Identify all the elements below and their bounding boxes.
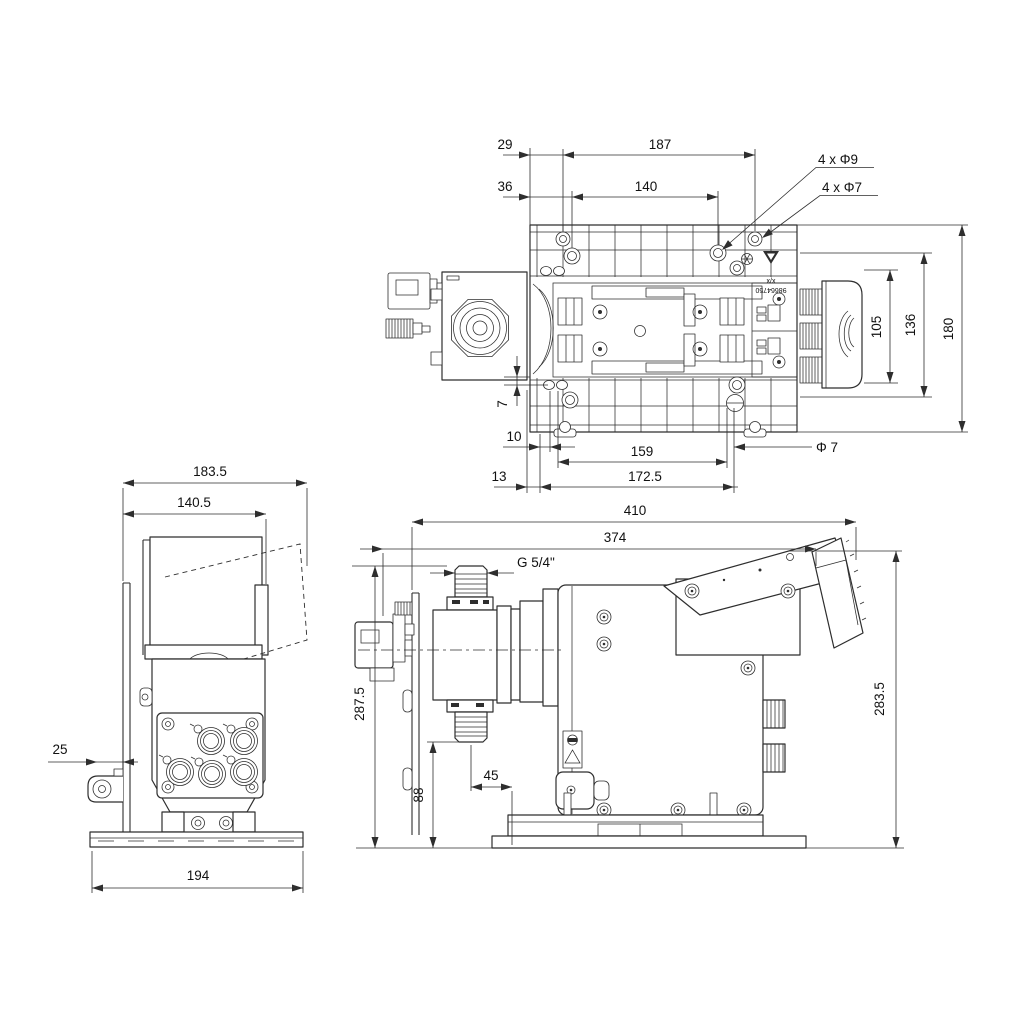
- dim-45: 45: [471, 768, 512, 791]
- dim-105: 105: [869, 270, 894, 383]
- dosing-head-top: [386, 272, 527, 380]
- base-plate-front: [90, 832, 303, 847]
- dim-label-thread: G 5/4": [517, 555, 555, 570]
- dim-183_5: 183.5: [123, 464, 307, 487]
- label-4x-phi9: 4 x Φ9: [818, 152, 858, 167]
- connector-panel: [157, 713, 263, 798]
- dim-thread-g54: G 5/4": [430, 555, 555, 577]
- side-knobs: [763, 700, 785, 772]
- plate-label-xx: x/x: [767, 278, 776, 285]
- dim-36-140: 36 140: [497, 179, 718, 201]
- mounting-plate: x/x 98664750: [530, 225, 797, 437]
- dim-label-159: 159: [631, 444, 654, 459]
- control-unit-top: [800, 281, 862, 388]
- dim-label-25: 25: [52, 742, 67, 757]
- display-slab: [812, 538, 863, 648]
- dim-29-187: 29 187: [497, 137, 755, 159]
- dim-88: 88: [411, 742, 437, 848]
- control-panel-front: [150, 537, 262, 648]
- knurled-knob: [386, 319, 413, 338]
- dim-label-194: 194: [187, 868, 210, 883]
- top-view-part: x/x 98664750: [386, 225, 862, 437]
- front-view: 183.5 140.5 25 194: [48, 464, 307, 893]
- dim-label-136: 136: [903, 314, 918, 337]
- dim-label-187: 187: [649, 137, 672, 152]
- side-view-part: [355, 538, 866, 848]
- drawing-canvas: x/x 98664750: [0, 0, 1024, 1024]
- dim-phi7: Φ 7: [734, 440, 838, 455]
- adjustment-knob: [763, 700, 785, 728]
- dim-label-140: 140: [635, 179, 658, 194]
- dim-159: 159: [558, 444, 727, 466]
- dim-287_5: 287.5: [352, 566, 379, 848]
- dim-label-45: 45: [483, 768, 498, 783]
- instruction-sticker: [563, 731, 582, 768]
- adjustment-knob: [763, 744, 785, 772]
- dim-label-374: 374: [604, 530, 627, 545]
- dim-140_5: 140.5: [123, 495, 266, 518]
- dim-label-105: 105: [869, 316, 884, 339]
- dim-136: 136: [903, 253, 928, 397]
- dim-label-140_5: 140.5: [177, 495, 211, 510]
- dim-194: 194: [92, 868, 303, 892]
- dim-label-172_5: 172.5: [628, 469, 662, 484]
- knurled-cap: [395, 602, 412, 615]
- dim-13-172_5: 13 172.5: [491, 469, 738, 491]
- suction-valve: [447, 700, 493, 742]
- dim-label-88: 88: [411, 787, 426, 802]
- base-screws: [192, 817, 233, 830]
- dim-label-phi7: Φ 7: [816, 440, 838, 455]
- dim-label-13: 13: [491, 469, 506, 484]
- dim-label-180: 180: [941, 318, 956, 341]
- dim-label-410: 410: [624, 503, 647, 518]
- cable-gland-top: [386, 273, 442, 365]
- top-view: x/x 98664750: [386, 137, 968, 493]
- dim-label-36: 36: [497, 179, 512, 194]
- cable-gland-side: [355, 602, 414, 681]
- dim-label-7: 7: [495, 400, 510, 408]
- wall-bracket: [88, 769, 123, 802]
- front-view-part: [88, 537, 307, 847]
- dim-label-29: 29: [497, 137, 512, 152]
- side-view: 410 374 G 5/4" 287.5: [352, 503, 904, 848]
- label-4x-phi7: 4 x Φ7: [822, 180, 862, 195]
- technical-drawing-page: x/x 98664750: [0, 0, 1024, 1024]
- dim-180: 180: [941, 225, 966, 432]
- dim-label-283_5: 283.5: [872, 682, 887, 716]
- dim-283_5: 283.5: [872, 551, 900, 848]
- dim-label-10: 10: [506, 429, 521, 444]
- plate-part-number: 98664750: [755, 286, 786, 293]
- dim-410: 410: [412, 503, 856, 526]
- dim-label-183_5: 183.5: [193, 464, 227, 479]
- dim-374: 374: [360, 530, 816, 553]
- dim-25: 25: [48, 742, 138, 766]
- dim-label-287_5: 287.5: [352, 687, 367, 721]
